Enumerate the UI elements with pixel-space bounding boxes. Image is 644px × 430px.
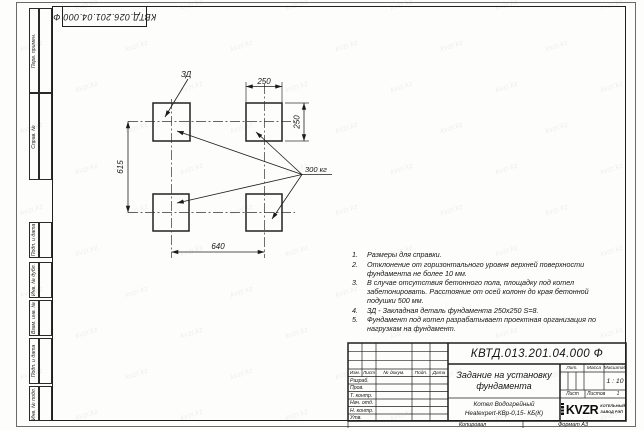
note-text: В случае отсутствия бетонного пола, площ… <box>367 279 614 305</box>
col-header-date: Дата <box>430 370 448 377</box>
sign-row-tcontrol: Т. контр. <box>350 392 377 399</box>
sheet-label: Лист <box>560 390 585 398</box>
dim-left-615: 615 <box>116 160 125 174</box>
scale-value: 1 : 10 <box>604 372 626 390</box>
product-name-line1: Котел Водогрейный <box>449 400 559 409</box>
note-text: Фундамент под котел разрабатывает проект… <box>367 316 614 334</box>
kvzr-caption-line2: ЗАВОД РЭП <box>600 410 625 416</box>
sheets-value: 1 <box>612 390 624 398</box>
note-item: 3.В случае отсутствия бетонного пола, пл… <box>352 279 614 305</box>
foundation-pads <box>153 103 282 231</box>
extension-lines <box>246 82 309 141</box>
note-number: 3. <box>352 279 367 305</box>
note-text: Размеры для справки. <box>367 251 614 260</box>
product-name-line2: Heatexpert-КВр-0,15- КБ(К) <box>449 409 559 418</box>
kvzr-logo-emblem-icon <box>561 403 564 416</box>
doc-number: КВТД.013.201.04.000 Ф <box>448 344 626 363</box>
sign-row-ncontrol: Н. контр. <box>350 407 377 414</box>
kvzr-logo-caption: КОТЕЛЬНЫЙ ЗАВОД РЭП <box>600 404 625 415</box>
copied-label: Копировал <box>430 422 515 429</box>
sign-row-checked: Пров. <box>350 385 377 392</box>
kvzr-logo-text: KVZR <box>566 403 598 417</box>
note-item: 2.Отклонение от горизонтального уровня в… <box>352 261 614 279</box>
pad-top-right <box>246 103 282 141</box>
sign-row-approved: Утв. <box>350 415 377 422</box>
lit-header: Лит. <box>560 365 584 372</box>
drawing-sheet: kvzr.kzkvzr.kzkvzr.kzkvzr.kzkvzr.kzkvzr.… <box>0 0 644 430</box>
note-number: 5. <box>352 316 367 334</box>
format-label: Формат А3 <box>535 422 611 429</box>
note-text: ЗД - Закладная деталь фундамента 250х250… <box>367 307 614 316</box>
sheets-label: Листов <box>587 390 611 398</box>
note-number: 4. <box>352 307 367 316</box>
note-item: 4.ЗД - Закладная деталь фундамента 250х2… <box>352 307 614 316</box>
kvzr-logo: KVZR КОТЕЛЬНЫЙ ЗАВОД РЭП <box>561 399 625 420</box>
dimension-lines <box>128 87 304 253</box>
col-header-list: Лист <box>362 370 376 377</box>
drawing-title: Задание на установку фундамента <box>449 365 559 397</box>
load-label: 300 кг <box>305 165 327 174</box>
col-header-docnum: № докум. <box>376 370 412 377</box>
drawing-notes: 1.Размеры для справки. 2.Отклонение от г… <box>352 251 614 335</box>
embed-detail-label: ЗД <box>181 70 192 79</box>
note-number: 1. <box>352 251 367 260</box>
note-text: Отклонение от горизонтального уровня вер… <box>367 261 614 279</box>
sign-row-dept-head: Нач. отд. <box>350 400 377 407</box>
note-item: 5.Фундамент под котел разрабатывает прое… <box>352 316 614 334</box>
note-number: 2. <box>352 261 367 279</box>
dim-right-250: 250 <box>293 115 302 130</box>
dim-top-250: 250 <box>256 77 271 86</box>
col-header-sign: Подп. <box>412 370 430 377</box>
note-item: 1.Размеры для справки. <box>352 251 614 260</box>
scale-header: Масштаб <box>604 365 626 372</box>
dim-bottom-640: 640 <box>211 242 225 251</box>
col-header-izm: Изм. <box>348 370 362 377</box>
mass-header: Масса <box>584 365 604 372</box>
leader-lines <box>165 79 332 219</box>
sign-row-developed: Разраб. <box>350 377 377 384</box>
